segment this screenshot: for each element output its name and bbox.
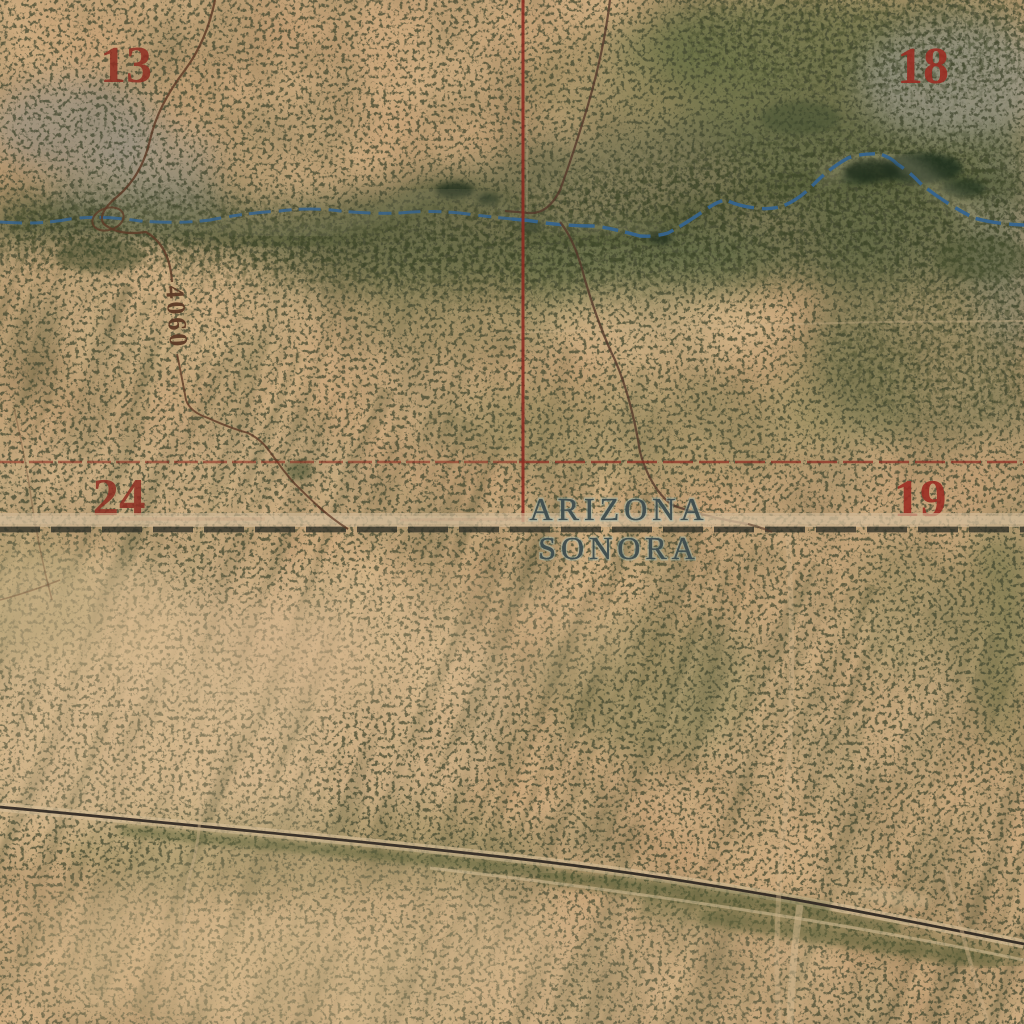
- svg-text:ARIZONA: ARIZONA: [530, 491, 709, 527]
- svg-text:SONORA: SONORA: [538, 530, 700, 566]
- svg-text:18: 18: [897, 38, 949, 95]
- svg-text:13: 13: [100, 37, 152, 94]
- svg-text:4060: 4060: [160, 284, 193, 350]
